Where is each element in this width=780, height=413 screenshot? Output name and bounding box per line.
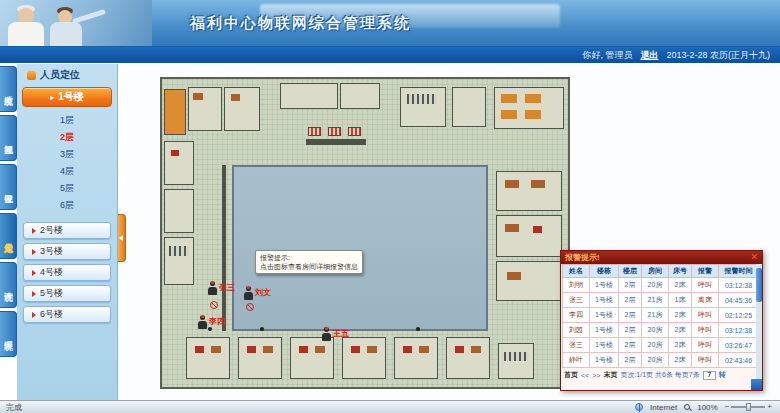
popup-scroll-corner[interactable]: [751, 379, 762, 390]
cell-alarm: 呼叫: [692, 308, 719, 323]
floorplan-room: [400, 87, 446, 127]
fall-alarm-icon: [210, 301, 218, 309]
user-bar: 你好, 管理员 退出 2013-2-28 农历(正月十九): [0, 47, 780, 63]
pager-next[interactable]: >>: [592, 372, 600, 379]
floorplan-room: [496, 215, 562, 257]
nav-tab-strip: 系统监控 视频监视 设备监视 人员定位 统计查询 系统管理: [0, 64, 17, 400]
tooltip-line1: 报警提示:: [260, 253, 358, 262]
floorplan-room: [494, 87, 564, 129]
alarm-marker[interactable]: 王五: [322, 327, 331, 341]
building-button-3[interactable]: 3号楼: [23, 243, 111, 260]
door-dot: [208, 327, 212, 331]
floorplan-room: [164, 237, 194, 285]
alarm-marker[interactable]: 张三: [208, 281, 217, 295]
cell-bed: 2床: [669, 353, 692, 368]
cell-floor: 2层: [619, 308, 642, 323]
cell-room: 20房: [642, 278, 669, 293]
close-icon[interactable]: ✕: [750, 253, 758, 262]
status-bar: 完成 Internet 100% − +: [0, 400, 780, 413]
col-name: 姓名: [563, 265, 590, 278]
building-button-6[interactable]: 6号楼: [23, 306, 111, 323]
page-number-input[interactable]: [703, 371, 716, 380]
zoom-in-icon[interactable]: +: [767, 403, 772, 411]
plan-tooltip: 报警提示: 点击图标查看房间详细报警信息: [255, 250, 363, 274]
alarm-table-header-row: 姓名 楼栋 楼层 房间 床号 报警 报警时间: [563, 265, 759, 278]
person-icon: [210, 281, 215, 286]
floorplan-room: [164, 189, 194, 233]
cell-time: 04:45:36: [719, 293, 759, 308]
col-room: 房间: [642, 265, 669, 278]
cell-alarm: 呼叫: [692, 323, 719, 338]
pager-prev[interactable]: <<: [581, 372, 589, 379]
col-building: 楼栋: [590, 265, 619, 278]
internet-zone-icon: [635, 403, 643, 411]
floorplan-room: [224, 87, 260, 131]
floorplan-room: [164, 141, 194, 185]
internet-zone-label: Internet: [650, 403, 677, 412]
table-row[interactable]: 静叶 1号楼 2层 20房 2床 呼叫 02:43:46: [563, 353, 759, 368]
zoom-slider[interactable]: − +: [725, 403, 772, 411]
cell-floor: 2层: [619, 293, 642, 308]
nav-tab-system-admin[interactable]: 系统管理: [0, 311, 17, 357]
person-icon: [322, 333, 331, 341]
cell-floor: 2层: [619, 338, 642, 353]
cell-time: 03:26:47: [719, 338, 759, 353]
alarm-marker-name: 张三: [219, 282, 235, 293]
floor-item-1[interactable]: 1层: [37, 112, 97, 129]
sofa-symbol: [348, 127, 361, 136]
person-icon: [200, 315, 205, 320]
nav-tab-video-monitor[interactable]: 视频监视: [0, 115, 17, 161]
floor-item-3[interactable]: 3层: [37, 146, 97, 163]
floor-item-2-active[interactable]: 2层: [37, 129, 97, 146]
floorplan-room: [394, 337, 438, 379]
floor-list: 1层 2层 3层 4层 5层 6层: [17, 109, 117, 218]
floorplan-wall: [222, 165, 226, 331]
alarm-marker-name: 李四: [209, 316, 225, 327]
cell-time: 03:12:38: [719, 323, 759, 338]
user-greeting: 你好, 管理员: [582, 49, 632, 62]
pager-last[interactable]: 末页: [603, 370, 617, 380]
floorplan-room: [496, 171, 562, 211]
floorplan-room: [164, 89, 186, 135]
cell-bed: 2床: [669, 323, 692, 338]
cell-building: 1号楼: [590, 278, 619, 293]
cell-floor: 2层: [619, 323, 642, 338]
cell-name: 张三: [563, 293, 590, 308]
cell-name: 静叶: [563, 353, 590, 368]
alarm-marker-name: 刘文: [255, 287, 271, 298]
person-icon: [246, 286, 251, 291]
floor-item-4[interactable]: 4层: [37, 163, 97, 180]
building-2-label: 2号楼: [40, 224, 63, 237]
floor-item-6[interactable]: 6层: [37, 197, 97, 214]
cell-alarm: 呼叫: [692, 338, 719, 353]
floorplan-room: [452, 87, 486, 127]
cell-alarm: 呼叫: [692, 353, 719, 368]
nav-tab-system-monitor[interactable]: 系统监控: [0, 66, 17, 112]
alarm-table: 姓名 楼栋 楼层 房间 床号 报警 报警时间 刘明 1号楼 2层 20房 2床 …: [562, 264, 759, 368]
app-title: 福利中心物联网综合管理系统: [190, 14, 411, 33]
cell-alarm: 呼叫: [692, 278, 719, 293]
alarm-marker[interactable]: 李四: [198, 315, 207, 329]
cell-bed: 1床: [669, 293, 692, 308]
floorplan-wall: [306, 139, 366, 145]
table-row[interactable]: 刘园 1号楼 2层 20房 2床 呼叫 03:12:38: [563, 323, 759, 338]
floorplan-room: [340, 83, 380, 109]
person-icon: [324, 327, 329, 332]
banner-photo: [0, 0, 152, 47]
zoom-out-icon[interactable]: −: [725, 403, 730, 411]
pager-info: 页次:1/1页 共6条 每页7条: [620, 370, 699, 380]
cell-time: 03:12:38: [719, 278, 759, 293]
red-arrow-icon: [32, 228, 36, 234]
floor-plan: 张三 刘文 李四 王五 报警提示: 点击图标查看房间详细报警信息: [160, 77, 570, 389]
table-row[interactable]: 刘明 1号楼 2层 20房 2床 呼叫 03:12:38: [563, 278, 759, 293]
alarm-marker-name: 王五: [333, 328, 349, 339]
cell-bed: 2床: [669, 308, 692, 323]
floorplan-courtyard: [232, 165, 488, 331]
tooltip-line2: 点击图标查看房间详细报警信息: [260, 262, 358, 271]
cell-building: 1号楼: [590, 308, 619, 323]
cell-floor: 2层: [619, 353, 642, 368]
building-button-2[interactable]: 2号楼: [23, 222, 111, 239]
current-date: 2013-2-28 农历(正月十九): [666, 49, 770, 62]
zoom-level: 100%: [697, 403, 717, 412]
alarm-popup: 报警提示! ✕ 姓名 楼栋 楼层 房间 床号 报警 报警时间 刘明 1号楼 2层…: [560, 250, 763, 391]
zoom-magnifier-icon: [684, 404, 690, 410]
floorplan-room: [290, 337, 334, 379]
sidebar-collapse-handle[interactable]: [118, 214, 126, 262]
cell-building: 1号楼: [590, 323, 619, 338]
cell-room: 21房: [642, 308, 669, 323]
alarm-popup-title: 报警提示!: [565, 252, 600, 263]
zoom-slider-track[interactable]: [731, 406, 765, 408]
table-row[interactable]: 张三 1号楼 2层 20房 2床 呼叫 03:26:47: [563, 338, 759, 353]
alarm-marker[interactable]: 刘文: [244, 286, 253, 300]
floorplan-room: [280, 83, 338, 109]
building-button-4[interactable]: 4号楼: [23, 264, 111, 281]
col-time: 报警时间: [719, 265, 759, 278]
floorplan-room: [342, 337, 386, 379]
popup-scrollbar[interactable]: [756, 264, 762, 379]
cell-bed: 2床: [669, 338, 692, 353]
alarm-popup-titlebar[interactable]: 报警提示! ✕: [561, 251, 762, 264]
popup-scrollbar-thumb[interactable]: [756, 268, 762, 302]
cell-name: 李四: [563, 308, 590, 323]
red-arrow-icon: [32, 291, 36, 297]
logout-link[interactable]: 退出: [640, 49, 658, 62]
sofa-symbol: [328, 127, 341, 136]
building-1-label: 1号楼: [58, 90, 84, 104]
floorplan-room: [446, 337, 490, 379]
pager-go-button[interactable]: 转: [719, 370, 726, 380]
cell-room: 20房: [642, 338, 669, 353]
cell-room: 20房: [642, 323, 669, 338]
cell-building: 1号楼: [590, 293, 619, 308]
floorplan-room: [498, 343, 534, 379]
sidebar-panel-header: 人员定位: [17, 64, 117, 84]
cell-name: 张三: [563, 338, 590, 353]
status-text: 完成: [0, 402, 635, 413]
red-arrow-icon: [32, 312, 36, 318]
floorplan-room: [188, 87, 222, 131]
status-right-group: Internet 100% − +: [635, 403, 780, 412]
cell-time: 02:12:25: [719, 308, 759, 323]
floorplan-room: [186, 337, 230, 379]
col-floor: 楼层: [619, 265, 642, 278]
cell-time: 02:43:46: [719, 353, 759, 368]
cell-room: 20房: [642, 353, 669, 368]
nav-tab-person-location[interactable]: 人员定位: [0, 213, 17, 259]
floor-item-5[interactable]: 5层: [37, 180, 97, 197]
col-bed: 床号: [669, 265, 692, 278]
floorplan-room: [496, 261, 562, 301]
cell-floor: 2层: [619, 278, 642, 293]
person-locate-icon: [27, 71, 36, 80]
cell-building: 1号楼: [590, 353, 619, 368]
building-button-5[interactable]: 5号楼: [23, 285, 111, 302]
col-alarm: 报警: [692, 265, 719, 278]
person-icon: [244, 292, 253, 300]
door-dot: [416, 327, 420, 331]
app-banner: 福利中心物联网综合管理系统: [0, 0, 780, 47]
table-row[interactable]: 李四 1号楼 2层 21房 2床 呼叫 02:12:25: [563, 308, 759, 323]
building-6-label: 6号楼: [40, 308, 63, 321]
door-dot: [260, 327, 264, 331]
cell-alarm: 离床: [692, 293, 719, 308]
zoom-slider-knob[interactable]: [746, 403, 751, 411]
building-5-label: 5号楼: [40, 287, 63, 300]
red-arrow-icon: [32, 249, 36, 255]
cell-bed: 2床: [669, 278, 692, 293]
floorplan-room: [238, 337, 282, 379]
fall-alarm-icon: [246, 303, 254, 311]
cell-name: 刘园: [563, 323, 590, 338]
table-row[interactable]: 张三 1号楼 2层 21房 1床 离床 04:45:36: [563, 293, 759, 308]
red-arrow-icon: [32, 270, 36, 276]
cell-room: 21房: [642, 293, 669, 308]
person-icon: [198, 321, 207, 329]
sofa-symbol: [308, 127, 321, 136]
cell-name: 刘明: [563, 278, 590, 293]
building-4-label: 4号楼: [40, 266, 63, 279]
cell-building: 1号楼: [590, 338, 619, 353]
building-3-label: 3号楼: [40, 245, 63, 258]
chevron-right-icon: ▸: [50, 93, 54, 102]
sidebar: 人员定位 ▸ 1号楼 1层 2层 3层 4层 5层 6层 2号楼 3号楼 4号楼…: [17, 64, 118, 400]
person-icon: [208, 287, 217, 295]
pager-first[interactable]: 首页: [564, 370, 578, 380]
sidebar-panel-title: 人员定位: [40, 68, 80, 82]
pagination-bar: 首页 << >> 末页 页次:1/1页 共6条 每页7条 转: [561, 368, 762, 380]
nav-tab-statistics[interactable]: 统计查询: [0, 262, 17, 308]
building-button-1[interactable]: ▸ 1号楼: [22, 87, 112, 107]
nav-tab-device-monitor[interactable]: 设备监视: [0, 164, 17, 210]
